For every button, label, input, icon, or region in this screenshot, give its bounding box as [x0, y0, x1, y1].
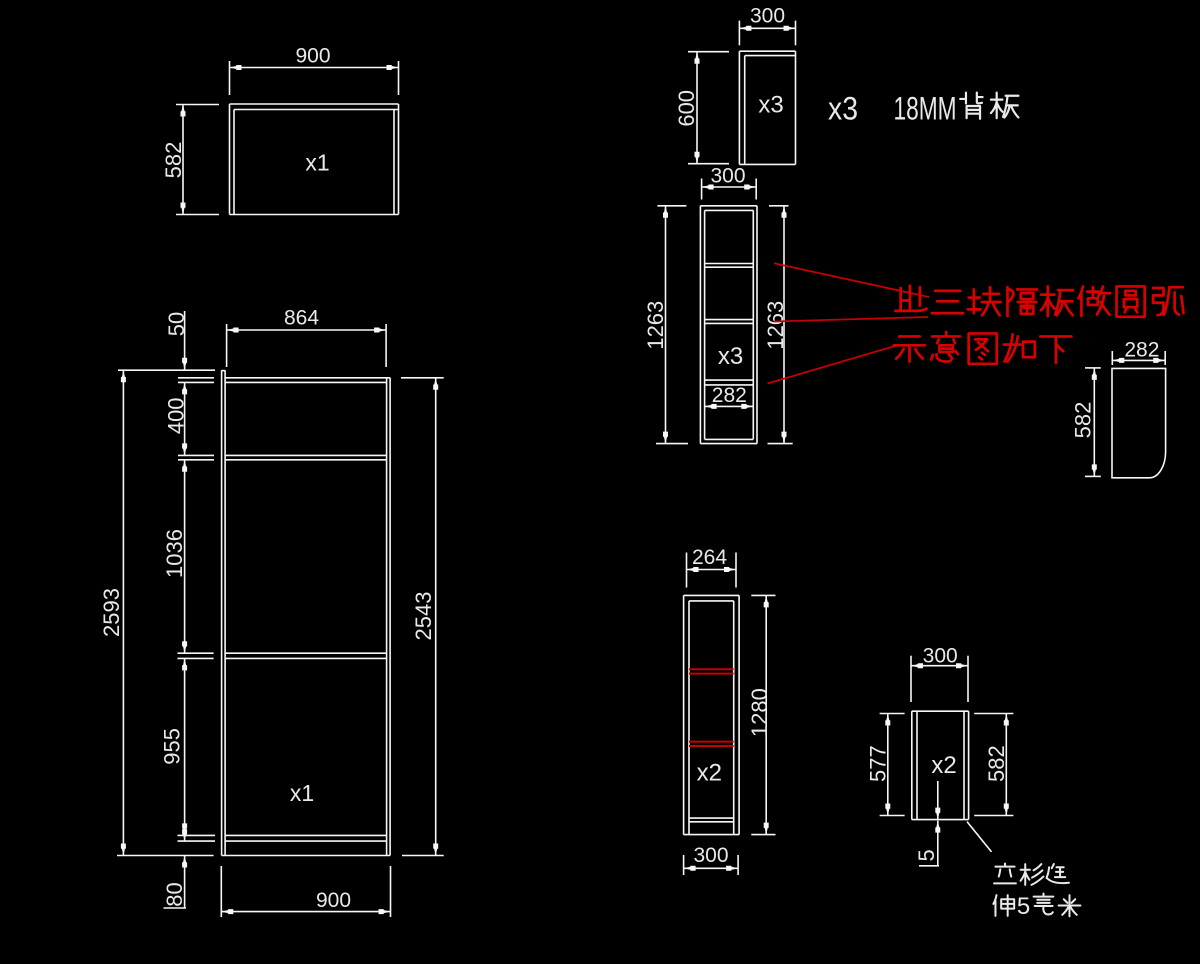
svg-text:1263: 1263 [643, 301, 668, 350]
svg-text:582: 582 [1071, 402, 1096, 439]
svg-text:582: 582 [984, 745, 1009, 782]
svg-text:282: 282 [712, 384, 747, 407]
svg-text:1263: 1263 [763, 301, 788, 350]
svg-text:50: 50 [164, 312, 189, 336]
svg-text:1280: 1280 [747, 688, 772, 737]
svg-text:600: 600 [674, 90, 699, 127]
svg-text:5: 5 [914, 849, 939, 861]
svg-text:x3: x3 [828, 91, 858, 127]
svg-text:5: 5 [1017, 893, 1030, 920]
svg-text:264: 264 [692, 546, 727, 569]
svg-text:300: 300 [750, 5, 785, 28]
svg-text:1036: 1036 [162, 529, 187, 578]
svg-text:300: 300 [923, 644, 958, 667]
svg-text:900: 900 [316, 889, 351, 912]
svg-text:x2: x2 [697, 760, 722, 787]
svg-text:577: 577 [865, 745, 890, 782]
svg-text:80: 80 [162, 882, 187, 906]
svg-text:400: 400 [163, 397, 188, 434]
svg-text:282: 282 [1124, 339, 1159, 362]
svg-text:2543: 2543 [411, 592, 436, 641]
svg-text:864: 864 [284, 307, 319, 330]
svg-text:x3: x3 [758, 92, 783, 119]
svg-text:18MM: 18MM [894, 91, 957, 127]
svg-text:582: 582 [161, 142, 186, 179]
svg-text:x1: x1 [305, 150, 329, 176]
svg-text:900: 900 [295, 45, 330, 68]
svg-text:x1: x1 [290, 780, 314, 806]
svg-text:x2: x2 [931, 752, 956, 779]
svg-text:x3: x3 [718, 343, 743, 370]
svg-text:300: 300 [710, 165, 745, 188]
svg-text:955: 955 [159, 728, 184, 765]
svg-text:2593: 2593 [99, 588, 124, 637]
svg-text:300: 300 [693, 844, 728, 867]
